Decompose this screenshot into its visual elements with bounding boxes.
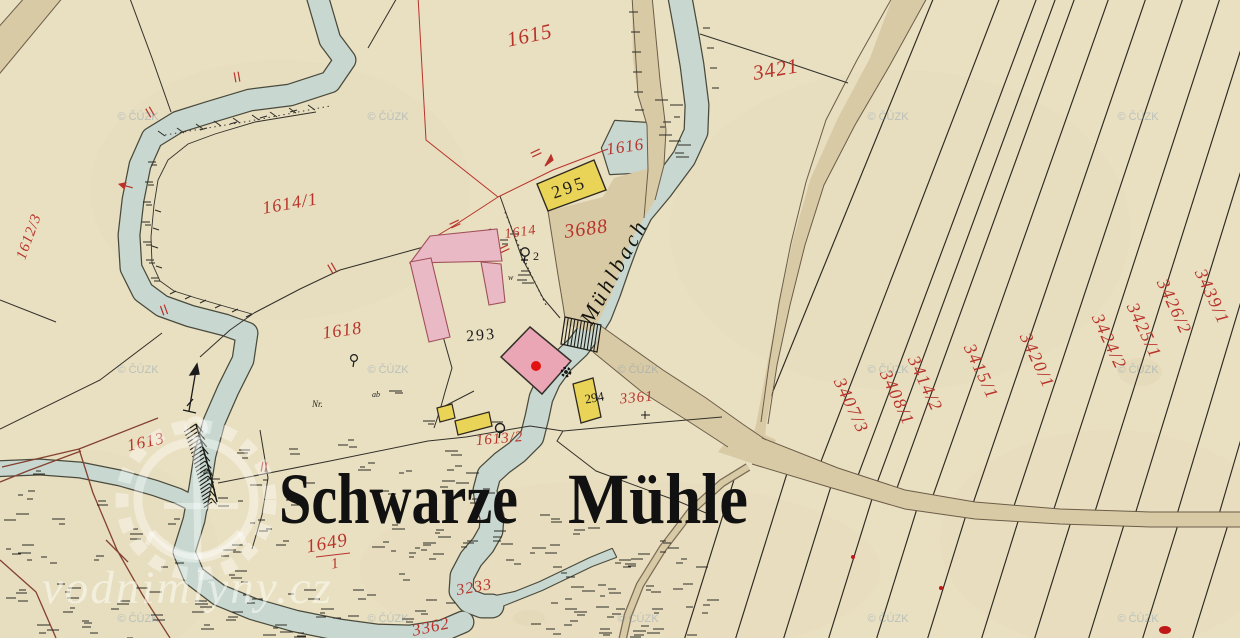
svg-text:© ČÚZK: © ČÚZK xyxy=(617,363,659,376)
svg-text:w: w xyxy=(508,273,514,282)
svg-text:© ČÚZK: © ČÚZK xyxy=(617,612,659,625)
svg-text:© ČÚZK: © ČÚZK xyxy=(117,110,159,123)
svg-text:© ČÚZK: © ČÚZK xyxy=(867,612,909,625)
svg-text:vodnimlyny.cz: vodnimlyny.cz xyxy=(42,562,333,614)
svg-text:Nr.: Nr. xyxy=(311,399,323,409)
svg-text:© ČÚZK: © ČÚZK xyxy=(117,363,159,376)
svg-text:© ČÚZK: © ČÚZK xyxy=(1117,612,1159,625)
svg-text:© ČÚZK: © ČÚZK xyxy=(367,110,409,123)
svg-text:© ČÚZK: © ČÚZK xyxy=(1117,110,1159,123)
svg-text:Schwarze: Schwarze xyxy=(279,459,518,539)
svg-text:© ČÚZK: © ČÚZK xyxy=(367,612,409,625)
svg-text:© ČÚZK: © ČÚZK xyxy=(367,363,409,376)
svg-text:© ČÚZK: © ČÚZK xyxy=(117,612,159,625)
svg-text:2: 2 xyxy=(533,249,539,263)
svg-text:© ČÚZK: © ČÚZK xyxy=(1117,363,1159,376)
svg-text:ab: ab xyxy=(372,390,380,399)
svg-text:Mühle: Mühle xyxy=(568,459,748,539)
svg-text:293: 293 xyxy=(465,326,496,346)
svg-text:© ČÚZK: © ČÚZK xyxy=(867,363,909,376)
svg-text:3361: 3361 xyxy=(618,389,654,408)
svg-text:© ČÚZK: © ČÚZK xyxy=(867,110,909,123)
